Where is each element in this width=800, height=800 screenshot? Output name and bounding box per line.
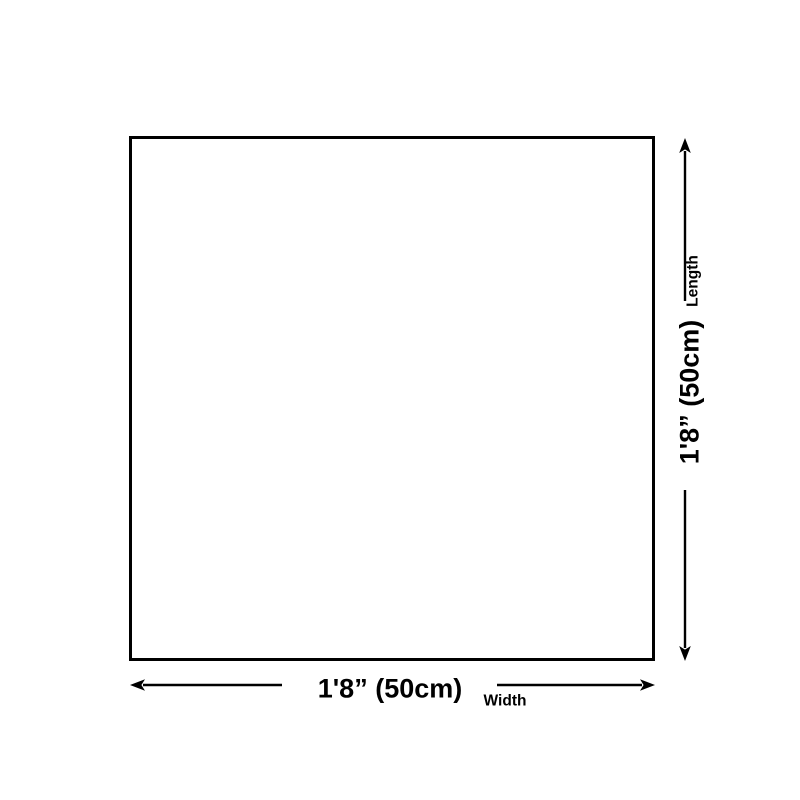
arrow-left-icon [130, 677, 282, 693]
arrow-down-icon [677, 490, 693, 661]
length-axis-label: Length [685, 255, 701, 307]
width-value: 1'8” (50cm) [318, 676, 463, 703]
product-dimension-diagram: Length 1'8” (50cm) 1'8” (50cm) Width [0, 0, 800, 800]
arrow-right-icon [497, 677, 655, 693]
width-axis-label: Width [484, 693, 527, 709]
product-outline [129, 136, 655, 661]
length-value: 1'8” (50cm) [677, 320, 704, 465]
